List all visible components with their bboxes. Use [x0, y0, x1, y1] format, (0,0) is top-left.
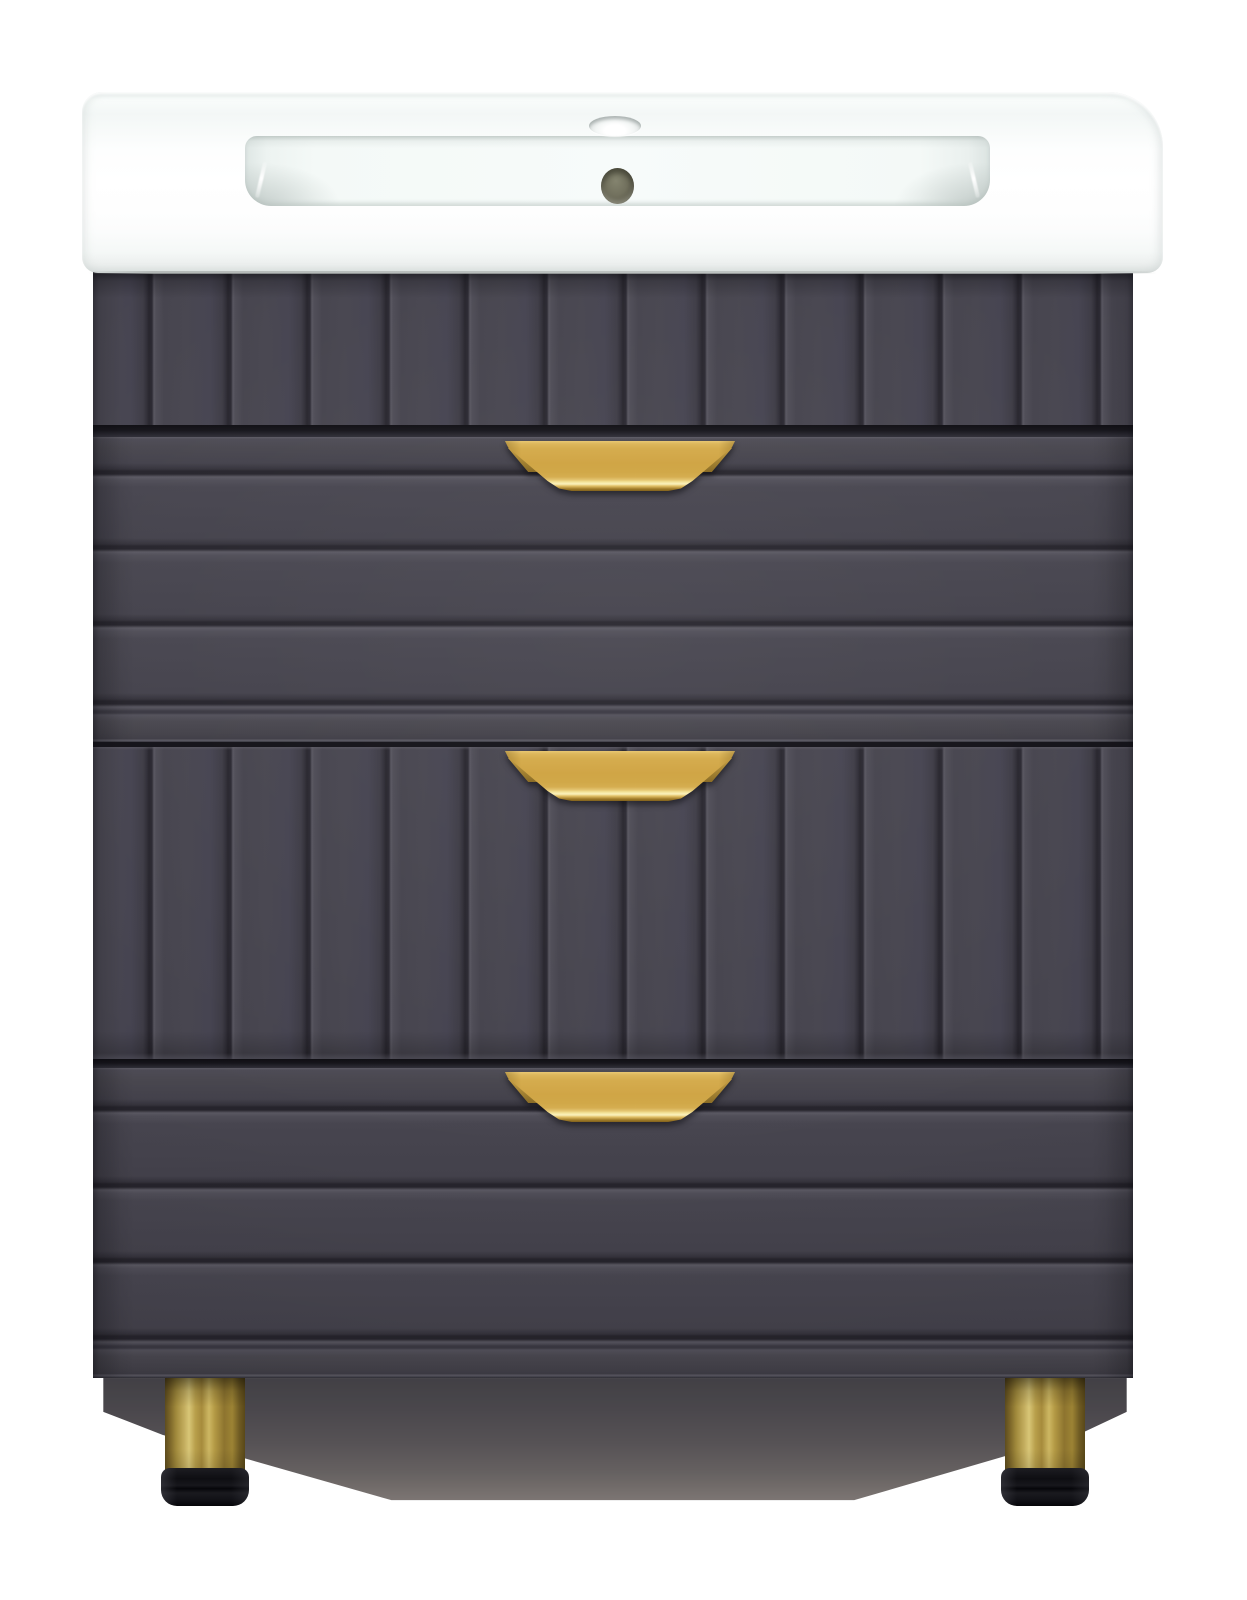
drawer-bottom [93, 1068, 1133, 1378]
drawer-top [93, 437, 1133, 742]
handle-cup [505, 1072, 735, 1122]
apron-drawer-gap [93, 425, 1133, 437]
basin-highlight [968, 162, 980, 198]
sink-basin-top [82, 92, 1163, 273]
apron-panel [93, 272, 1133, 425]
vanity-cabinet [93, 272, 1133, 1378]
drawer-middle-handle [505, 751, 735, 801]
basin-highlight [255, 162, 267, 198]
faucet-hole [589, 116, 641, 136]
drawer-bottom-handle [505, 1072, 735, 1122]
left-leg-foot [161, 1468, 249, 1506]
right-leg [1005, 1377, 1085, 1471]
drawer-gap [93, 1059, 1133, 1068]
drawer-top-handle [505, 441, 735, 491]
floor-shadow [95, 1376, 1135, 1504]
drawer-middle [93, 747, 1133, 1059]
overflow-hole [601, 168, 634, 204]
handle-cup [505, 751, 735, 801]
product-photo [0, 0, 1247, 1600]
left-leg [165, 1377, 245, 1471]
right-leg-foot [1001, 1468, 1089, 1506]
handle-cup [505, 441, 735, 491]
